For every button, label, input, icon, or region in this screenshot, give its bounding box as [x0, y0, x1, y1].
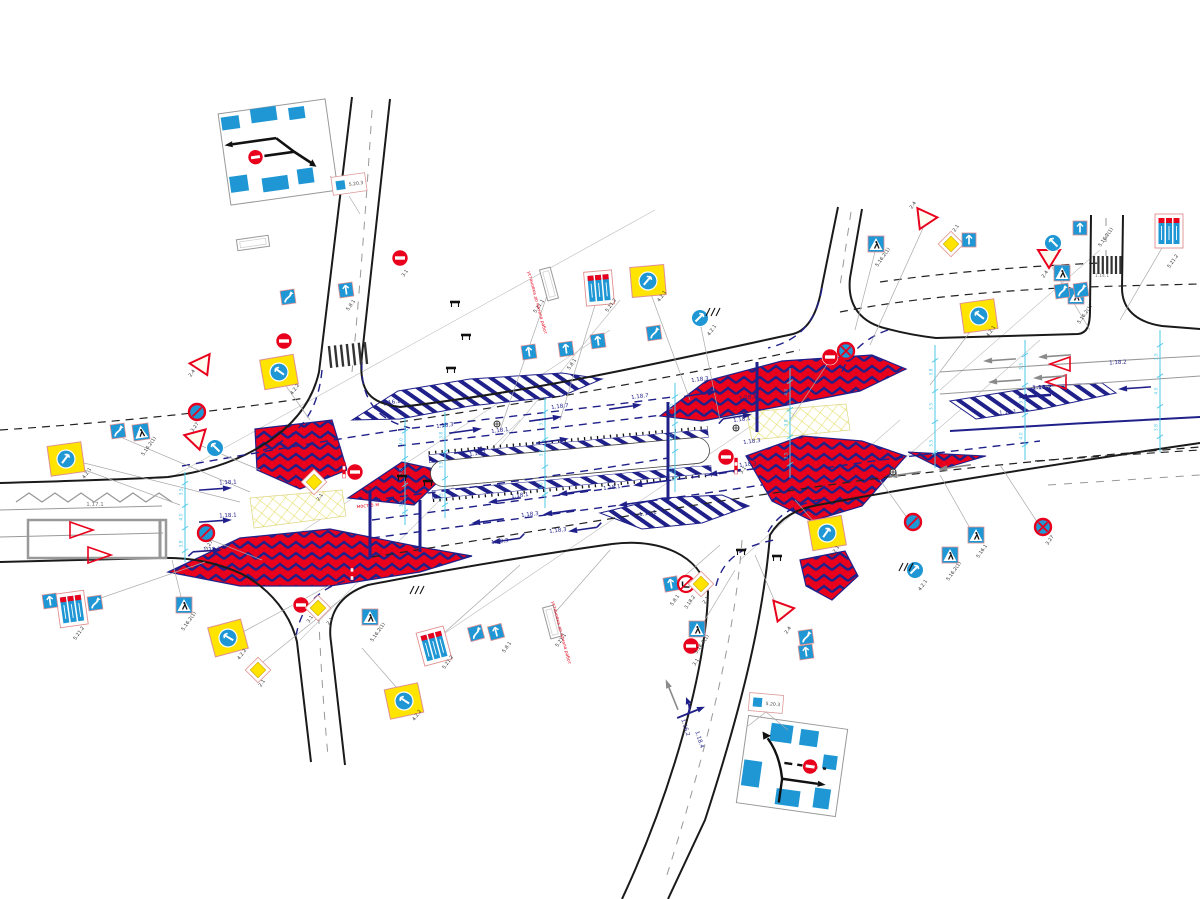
sign-code-label: 5.21.2: [72, 625, 86, 641]
sign-code-label: 1.17.1: [86, 502, 104, 508]
road-edges: [0, 97, 1200, 899]
sign-code-label: 5.8.1: [501, 641, 513, 654]
svg-text:3.8: 3.8: [929, 368, 935, 375]
sign-sig: [890, 469, 896, 475]
svg-text:4.0: 4.0: [539, 482, 545, 489]
svg-text:3.5: 3.5: [439, 461, 445, 468]
dimension-line: 3.54.03.8: [1154, 330, 1164, 452]
sign-code-label: 4.2.1: [917, 579, 929, 592]
lane-arrow: [1118, 384, 1151, 392]
sign-code-label: 3.27: [1045, 534, 1056, 546]
dimension-line: 3.54.03.8: [179, 472, 189, 562]
sign-code-label: 2.4: [188, 369, 197, 379]
marking-code-label: 1.18.1: [511, 492, 529, 500]
sign-code-label: 4.2.1: [706, 324, 718, 337]
sign-code-label: 2.4: [1041, 270, 1050, 280]
svg-text:3.8: 3.8: [784, 419, 790, 426]
sign-bar: [736, 550, 746, 555]
sign-3.27: [1035, 519, 1051, 535]
sign-5.21.2: [236, 235, 269, 250]
svg-text:3.5: 3.5: [669, 403, 675, 410]
marking-code-label: 1.18.2: [1109, 360, 1127, 367]
sign-code-label: 5.16.2(1): [1097, 227, 1115, 249]
red-island: [255, 420, 347, 489]
sign-bar: [461, 335, 471, 340]
sign-5.8.1: [590, 333, 606, 349]
sign-4.2.2: [207, 440, 224, 457]
sign-5.8.1: [798, 629, 814, 645]
marking-code-label: 1.18.2: [1032, 384, 1052, 391]
svg-text:4.0: 4.0: [179, 513, 185, 520]
sign-3.27: [905, 514, 921, 530]
svg-text:4.0: 4.0: [669, 434, 675, 441]
sign-5.8.1: [110, 423, 126, 439]
sign-3.1: [718, 449, 734, 465]
sign-code-label: 3.18.2: [683, 594, 697, 610]
marking-code-label: 1.18.3: [491, 538, 510, 546]
sign-5.8.1: [280, 289, 296, 305]
marking-code-label: 1.18.1: [219, 513, 237, 520]
sign-5.16.2(1): [942, 547, 958, 563]
sign-5.8.1: [663, 576, 679, 592]
marking-code-label: 1.18.3: [549, 527, 568, 535]
sign-4.2.1: [630, 265, 666, 298]
sign-sig: [494, 421, 500, 427]
sign-3.1: [392, 250, 408, 266]
red-island: [908, 452, 986, 469]
sign-code-label: 2.4: [909, 201, 918, 211]
svg-text:3.8: 3.8: [179, 540, 185, 547]
traffic-plan-svg: 3.54.03.84.03.83.53.83.53.53.53.54.03.54…: [0, 0, 1200, 899]
bus-bay-marking: [28, 520, 166, 558]
sign-bar: [446, 368, 456, 373]
sign-5.21.2: [1155, 214, 1183, 248]
svg-text:3.8: 3.8: [669, 466, 675, 473]
sign-5.8.1: [1073, 282, 1089, 298]
sign-hm: [410, 586, 424, 594]
svg-text:4.0: 4.0: [784, 388, 790, 395]
sign-5.16.2(1): [362, 609, 378, 625]
sign-code-label: 5.16.2(1): [180, 611, 198, 633]
red-island: [746, 436, 906, 521]
svg-text:3.5: 3.5: [784, 452, 790, 459]
zigzag-bus-marking: [16, 493, 172, 502]
svg-text:4.0: 4.0: [1019, 432, 1025, 439]
sign-5.21.1: [540, 267, 559, 301]
marking-code-label: 1.18.3: [521, 511, 540, 519]
sign-5.21.2: [56, 590, 88, 628]
sign-code-label: 5.8.1: [345, 299, 357, 312]
marking-code-label: 1.18.4: [693, 730, 704, 749]
sign-4.2.1: [47, 442, 85, 476]
dimension-line: 3.83.53.5: [929, 345, 939, 468]
sign-post: [735, 458, 738, 474]
sign-4.2.2: [1045, 235, 1062, 252]
sign-2.4: [767, 601, 794, 625]
sign-3.27: [838, 343, 854, 359]
sign-5.8.1: [521, 344, 537, 360]
sign-5.16.1: [968, 527, 984, 543]
detour-inset-bottom-right: [736, 715, 847, 816]
sign-code-label: 1.14.1: [1095, 273, 1109, 279]
yellow-box-marking: [250, 490, 346, 528]
lane-arrow: [199, 485, 232, 493]
lane-arrow: [988, 377, 1021, 385]
marking-code-label: 1.18.1: [219, 480, 237, 487]
sign-5.8.1: [467, 624, 484, 641]
sign-5.8.1: [646, 325, 662, 341]
sign-5.8.1: [962, 233, 976, 247]
sign-post: [351, 564, 354, 580]
sign-code-label: 2.1: [952, 224, 961, 234]
sign-3.1: [276, 333, 292, 349]
sign-5.21.2: [584, 270, 615, 306]
sign-5.8.1: [87, 595, 103, 611]
svg-text:3.5: 3.5: [1154, 353, 1160, 360]
sign-5.20.3: 5.20.3: [748, 693, 783, 714]
svg-text:3.8: 3.8: [399, 468, 405, 475]
svg-text:3.5: 3.5: [439, 493, 445, 500]
traffic-plan-canvas: 3.54.03.84.03.83.53.83.53.53.53.54.03.54…: [0, 0, 1200, 899]
marking-code-label: 1.16.2: [679, 718, 690, 736]
svg-text:3.5: 3.5: [929, 403, 935, 410]
sign-3.1: [347, 464, 363, 480]
sign-code-label: 5.8.1: [669, 594, 681, 607]
svg-text:3.5: 3.5: [929, 440, 935, 447]
sign-code-label: 2.1: [702, 596, 711, 606]
lane-arrow: [663, 678, 681, 711]
svg-text:3.8: 3.8: [1154, 424, 1160, 431]
sign-2.1: [688, 571, 713, 596]
sign-5.8.1: [1073, 221, 1087, 235]
sign-5.16.2(1): [1054, 265, 1070, 281]
sign-code-label: 2.4: [784, 626, 793, 636]
sign-5.8.1: [1054, 283, 1070, 299]
sign-5.8.1: [338, 282, 354, 298]
marking-code-label: 1.18.1: [603, 484, 621, 492]
sign-3.1: [822, 349, 838, 365]
svg-text:4.0: 4.0: [399, 438, 405, 445]
sign-5.16.2(1): [868, 236, 884, 252]
sign-post: [343, 462, 346, 478]
sign-code-label: 5.16.1: [975, 543, 989, 559]
marking-code-label: 1.18.3: [436, 422, 455, 430]
svg-text:3.5: 3.5: [179, 488, 185, 495]
sign-2.1: [245, 657, 270, 682]
sign-5.16.2(1): [176, 597, 192, 613]
sign-3.27: [189, 404, 205, 420]
sign-5.8.1: [42, 593, 58, 609]
sign-3.1: [293, 597, 309, 613]
sign-bar: [450, 302, 460, 307]
lane-arrow: [983, 356, 1016, 364]
svg-text:3.8: 3.8: [439, 432, 445, 439]
marking-code-label: 1.18.3: [743, 438, 762, 446]
red-note-label: мост 5 м: [356, 502, 379, 510]
sign-2.4: [910, 208, 938, 234]
sign-4.2.1: [692, 310, 709, 327]
sign-2.1: [938, 231, 963, 256]
red-island: [800, 551, 858, 600]
sign-4.2.1: [808, 515, 847, 550]
hatched-island: [600, 495, 749, 529]
sign-4.2.2: [260, 354, 299, 389]
marking-code-label: 1.18.7: [631, 393, 650, 401]
sign-5.16.2(1): [132, 423, 150, 441]
svg-text:3.5: 3.5: [399, 500, 405, 507]
sign-5.16.2(1): [689, 621, 705, 637]
zebra-crossing: [1094, 256, 1120, 274]
svg-text:4.0: 4.0: [1154, 387, 1160, 394]
sign-code-label: 2.1: [326, 617, 335, 627]
marking-code-label: 1.16.1: [999, 409, 1017, 417]
sign-sig: [733, 425, 739, 431]
sign-3.27: [198, 525, 214, 541]
sign-bar: [772, 556, 782, 561]
sign-code-label: 3.1: [401, 269, 410, 279]
sign-code-label: 5.21.2: [1166, 253, 1180, 269]
sign-5.8.1: [487, 623, 504, 640]
svg-text:3.5: 3.5: [1019, 363, 1025, 370]
sign-code-label: 5.8.1: [566, 358, 578, 371]
svg-text:3.5: 3.5: [539, 449, 545, 456]
detour-inset-top-left: [218, 99, 338, 205]
sign-5.8.1: [798, 644, 814, 660]
sign-5.8.1: [558, 341, 574, 357]
sign-code-label: 5.16.2(1): [945, 561, 963, 583]
